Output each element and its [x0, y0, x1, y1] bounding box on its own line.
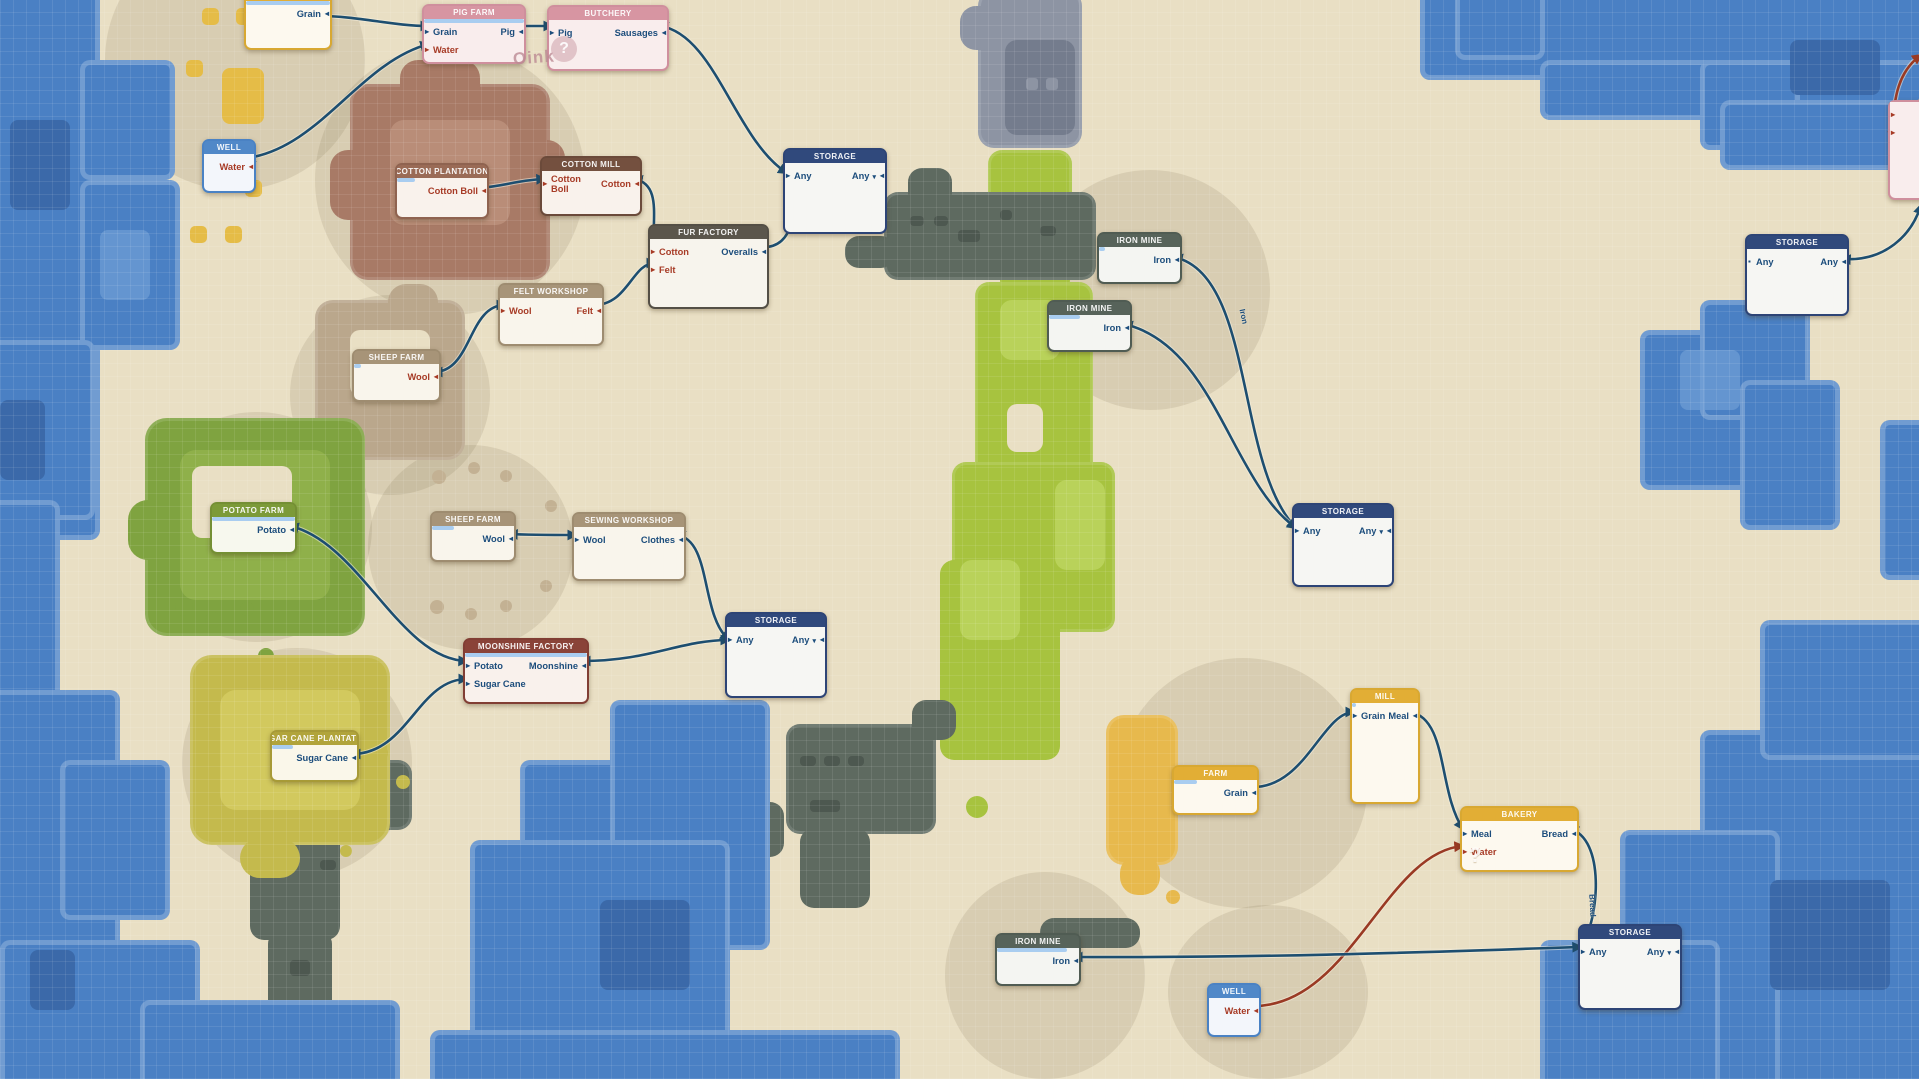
fur-factory[interactable]: FUR FACTORY▸CottonOveralls◂▸Felt — [648, 224, 769, 309]
bakery-output-bread[interactable]: Bread — [1542, 829, 1568, 839]
pig-farm[interactable]: PIG FARM▸GrainPig◂▸Water — [422, 4, 526, 64]
storage-right-title: STORAGE — [1294, 505, 1392, 518]
cotton-mill-body: ▸Cotton BollCotton◂ — [542, 171, 640, 214]
well-bottom-output-water[interactable]: Water — [1225, 1006, 1251, 1016]
output-port-marker: ◂ — [482, 187, 486, 195]
storage-bottom-right[interactable]: STORAGE▸AnyAny▾◂ — [1578, 924, 1682, 1010]
pig-farm-row-1: ▸Water — [424, 41, 524, 59]
well-top-title: WELL — [204, 141, 254, 154]
pig-farm-title: PIG FARM — [424, 6, 524, 19]
farm-bottom-body: Grain◂ — [1174, 780, 1257, 813]
bakery-title: BAKERY — [1462, 808, 1577, 821]
edge-node-row-1: ▸ — [1890, 124, 1919, 142]
storage-far-right-output-any[interactable]: Any — [1820, 257, 1838, 267]
felt-workshop-title: FELT WORKSHOP — [500, 285, 602, 298]
iron-mine-1-progress-bar — [1099, 247, 1105, 251]
output-port-marker: ◂ — [820, 636, 824, 644]
mill-body: ▸GrainMeal◂ — [1352, 703, 1418, 802]
cotton-plantation-output-cotton-boll[interactable]: Cotton Boll — [428, 186, 478, 196]
input-port-marker: ▸ — [543, 180, 547, 188]
moonshine-factory-input-potato[interactable]: Potato — [474, 661, 503, 671]
fur-factory-row-1: ▸Felt — [650, 261, 767, 279]
iron-mine-3[interactable]: IRON MINEIron◂ — [995, 933, 1081, 986]
sewing-workshop-row-0: ▸WoolClothes◂ — [574, 531, 684, 549]
cotton-plantation[interactable]: COTTON PLANTATIONCotton Boll◂ — [395, 163, 489, 219]
output-port-marker: ◂ — [249, 163, 253, 171]
mill-progress-bar — [1352, 703, 1356, 707]
sheep-farm-2-row-0: Wool◂ — [432, 530, 514, 548]
iron-mine-3-title: IRON MINE — [997, 935, 1079, 948]
input-port-marker: ▸ — [466, 662, 470, 670]
iron-mine-3-row-0: Iron◂ — [997, 952, 1079, 970]
iron-mine-1-body: Iron◂ — [1099, 247, 1180, 282]
cotton-mill-row-0: ▸Cotton BollCotton◂ — [542, 175, 640, 193]
storage-far-right-body: ▪AnyAny◂ — [1747, 249, 1847, 314]
sheep-farm-1-body: Wool◂ — [354, 364, 439, 400]
fur-factory-row-0: ▸CottonOveralls◂ — [650, 243, 767, 261]
pig-farm-input-water[interactable]: Water — [433, 45, 459, 55]
bakery-ghost-question-mark: ? — [1469, 844, 1482, 868]
moonshine-factory-body: ▸PotatoMoonshine◂▸Sugar Cane — [465, 653, 587, 702]
storage-right-input-any[interactable]: Any — [1303, 526, 1321, 536]
cotton-plantation-progress-bar — [397, 178, 415, 182]
farm-bottom[interactable]: FARMGrain◂ — [1172, 765, 1259, 815]
output-port-marker: ◂ — [679, 536, 683, 544]
potato-farm-title: POTATO FARM — [212, 504, 295, 517]
cotton-plantation-title: COTTON PLANTATION — [397, 165, 487, 178]
dropdown-arrow-icon[interactable]: ▾ — [872, 174, 876, 181]
storage-top-body: ▸AnyAny▾◂ — [785, 163, 885, 232]
edge-node-row-0: ▸ — [1890, 106, 1919, 124]
sugar-cane-plantation-title: SUGAR CANE PLANTATION — [272, 732, 357, 745]
output-port-marker: ◂ — [509, 535, 513, 543]
pig-farm-body: ▸GrainPig◂▸Water — [424, 19, 524, 62]
edge-node[interactable]: ▸▸ — [1888, 100, 1919, 200]
farm-top-progress-bar — [246, 1, 330, 5]
input-port-marker: ▸ — [728, 636, 732, 644]
output-port-marker: ◂ — [1572, 830, 1576, 838]
sheep-farm-2-output-wool[interactable]: Wool — [482, 534, 505, 544]
output-port-marker: ◂ — [1675, 948, 1679, 956]
storage-right-body: ▸AnyAny▾◂ — [1294, 518, 1392, 585]
moonshine-factory-title: MOONSHINE FACTORY — [465, 640, 587, 653]
butchery-title: BUTCHERY — [549, 7, 667, 20]
fur-factory-input-felt[interactable]: Felt — [659, 265, 676, 275]
input-port-marker: ▸ — [1891, 111, 1895, 119]
cotton-mill[interactable]: COTTON MILL▸Cotton BollCotton◂ — [540, 156, 642, 216]
sewing-workshop-body: ▸WoolClothes◂ — [574, 527, 684, 579]
iron-mine-1-output-iron[interactable]: Iron — [1153, 255, 1171, 265]
output-port-marker: ◂ — [290, 526, 294, 534]
output-port-marker: ◂ — [762, 248, 766, 256]
output-port-marker: ◂ — [325, 10, 329, 18]
storage-right-row-0: ▸AnyAny▾◂ — [1294, 522, 1392, 540]
potato-farm-progress-bar — [212, 517, 295, 521]
dropdown-arrow-icon[interactable]: ▾ — [812, 638, 816, 645]
storage-center-row-0: ▸AnyAny▾◂ — [727, 631, 825, 649]
iron-mine-2-row-0: Iron◂ — [1049, 319, 1130, 337]
farm-bottom-row-0: Grain◂ — [1174, 784, 1257, 802]
felt-workshop-body: ▸WoolFelt◂ — [500, 298, 602, 344]
input-port-marker: ▸ — [466, 680, 470, 688]
output-port-marker: ◂ — [1387, 527, 1391, 535]
moonshine-factory-output-moonshine[interactable]: Moonshine — [529, 661, 578, 671]
output-port-marker: ◂ — [352, 754, 356, 762]
felt-workshop-output-felt[interactable]: Felt — [576, 306, 593, 316]
pig-farm-input-grain[interactable]: Grain — [433, 27, 457, 37]
cotton-mill-input-cotton-boll[interactable]: Cotton Boll — [551, 174, 601, 194]
well-bottom-body: Water◂ — [1209, 998, 1259, 1035]
felt-workshop-row-0: ▸WoolFelt◂ — [500, 302, 602, 320]
bakery-row-0: ▸MealBread◂ — [1462, 825, 1577, 843]
storage-far-right-title: STORAGE — [1747, 236, 1847, 249]
output-port-marker: ◂ — [1175, 256, 1179, 264]
input-port-marker: ▸ — [1353, 712, 1357, 720]
fur-factory-title: FUR FACTORY — [650, 226, 767, 239]
farm-top-row-0: Grain◂ — [246, 5, 330, 23]
input-port-marker: ▸ — [786, 172, 790, 180]
storage-center-title: STORAGE — [727, 614, 825, 627]
output-port-marker: ◂ — [1125, 324, 1129, 332]
storage-far-right-input-any[interactable]: Any — [1756, 257, 1774, 267]
storage-right-output-any[interactable]: Any▾ — [1359, 526, 1383, 536]
cotton-plantation-row-0: Cotton Boll◂ — [397, 182, 487, 200]
input-port-marker: ▸ — [1581, 948, 1585, 956]
output-port-marker: ◂ — [880, 172, 884, 180]
sheep-farm-1-row-0: Wool◂ — [354, 368, 439, 386]
farm-top[interactable]: FARMGrain◂ — [244, 0, 332, 50]
storage-right[interactable]: STORAGE▸AnyAny▾◂ — [1292, 503, 1394, 587]
storage-top-output-any[interactable]: Any▾ — [852, 171, 876, 181]
bakery-body: ▸MealBread◂▸Water? — [1462, 821, 1577, 870]
storage-top-input-any[interactable]: Any — [794, 171, 812, 181]
sugar-cane-plantation-body: Sugar Cane◂ — [272, 745, 357, 780]
moonshine-factory[interactable]: MOONSHINE FACTORY▸PotatoMoonshine◂▸Sugar… — [463, 638, 589, 704]
well-top-output-water[interactable]: Water — [220, 162, 246, 172]
well-top-row-0: Water◂ — [204, 158, 254, 176]
output-port-marker: ◂ — [1413, 712, 1417, 720]
output-port-marker: ◂ — [519, 28, 523, 36]
iron-mine-1-title: IRON MINE — [1099, 234, 1180, 247]
mill-title: MILL — [1352, 690, 1418, 703]
output-port-marker: ◂ — [635, 180, 639, 188]
moonshine-factory-row-0: ▸PotatoMoonshine◂ — [465, 657, 587, 675]
iron-mine-2-body: Iron◂ — [1049, 315, 1130, 350]
dropdown-arrow-icon[interactable]: ▾ — [1379, 529, 1383, 536]
sheep-farm-2[interactable]: SHEEP FARMWool◂ — [430, 511, 516, 562]
moonshine-factory-progress-bar — [465, 653, 587, 657]
game-map[interactable]: IronBread FARMGrain◂PIG FARM▸GrainPig◂▸W… — [0, 0, 1919, 1079]
storage-top[interactable]: STORAGE▸AnyAny▾◂ — [783, 148, 887, 234]
sheep-farm-2-body: Wool◂ — [432, 526, 514, 560]
mill[interactable]: MILL▸GrainMeal◂ — [1350, 688, 1420, 804]
storage-center-body: ▸AnyAny▾◂ — [727, 627, 825, 696]
sewing-workshop-input-wool[interactable]: Wool — [583, 535, 606, 545]
mill-output-meal[interactable]: Meal — [1388, 711, 1409, 721]
fur-factory-input-cotton[interactable]: Cotton — [659, 247, 689, 257]
pig-farm-row-0: ▸GrainPig◂ — [424, 23, 524, 41]
storage-far-right[interactable]: STORAGE▪AnyAny◂ — [1745, 234, 1849, 316]
cotton-plantation-body: Cotton Boll◂ — [397, 178, 487, 217]
sugar-cane-plantation-progress-bar — [272, 745, 293, 749]
fur-factory-output-overalls[interactable]: Overalls — [721, 247, 758, 257]
bakery[interactable]: BAKERY▸MealBread◂▸Water? — [1460, 806, 1579, 872]
output-port-marker: ◂ — [1074, 957, 1078, 965]
sugar-cane-plantation-output-sugar-cane[interactable]: Sugar Cane — [296, 753, 348, 763]
cotton-mill-output-cotton[interactable]: Cotton — [601, 179, 631, 189]
output-port-marker: ◂ — [1254, 1007, 1258, 1015]
input-port-marker: ▸ — [501, 307, 505, 315]
mill-input-grain[interactable]: Grain — [1361, 711, 1385, 721]
sheep-farm-2-progress-bar — [432, 526, 454, 530]
input-port-marker: ▸ — [575, 536, 579, 544]
farm-top-body: Grain◂ — [246, 1, 330, 48]
sewing-workshop[interactable]: SEWING WORKSHOP▸WoolClothes◂ — [572, 512, 686, 581]
iron-mine-1-row-0: Iron◂ — [1099, 251, 1180, 269]
storage-bottom-right-body: ▸AnyAny▾◂ — [1580, 939, 1680, 1008]
felt-workshop[interactable]: FELT WORKSHOP▸WoolFelt◂ — [498, 283, 604, 346]
pig-farm-progress-bar — [424, 19, 524, 23]
well-bottom[interactable]: WELLWater◂ — [1207, 983, 1261, 1037]
storage-center-output-any[interactable]: Any▾ — [792, 635, 816, 645]
sheep-farm-1[interactable]: SHEEP FARMWool◂ — [352, 349, 441, 402]
storage-bottom-right-title: STORAGE — [1580, 926, 1680, 939]
iron-mine-3-progress-bar — [997, 948, 1067, 952]
input-port-marker: ▸ — [651, 266, 655, 274]
iron-mine-3-output-iron[interactable]: Iron — [1052, 956, 1070, 966]
iron-mine-2-progress-bar — [1049, 315, 1080, 319]
output-port-marker: ◂ — [597, 307, 601, 315]
input-port-marker: ▸ — [550, 29, 554, 37]
farm-top-output-grain[interactable]: Grain — [297, 9, 321, 19]
sheep-farm-2-title: SHEEP FARM — [432, 513, 514, 526]
dropdown-arrow-icon[interactable]: ▾ — [1667, 950, 1671, 957]
input-port-marker: ▸ — [1463, 830, 1467, 838]
input-port-marker: ▸ — [425, 28, 429, 36]
input-port-marker: ▸ — [1891, 129, 1895, 137]
sewing-workshop-output-clothes[interactable]: Clothes — [641, 535, 675, 545]
edge-node-body: ▸▸ — [1890, 102, 1919, 198]
moonshine-factory-input-sugar-cane[interactable]: Sugar Cane — [474, 679, 526, 689]
output-port-marker: ◂ — [434, 373, 438, 381]
iron-mine-2[interactable]: IRON MINEIron◂ — [1047, 300, 1132, 352]
sugar-cane-plantation-row-0: Sugar Cane◂ — [272, 749, 357, 767]
potato-farm-row-0: Potato◂ — [212, 521, 295, 539]
storage-bottom-right-output-any[interactable]: Any▾ — [1647, 947, 1671, 957]
sheep-farm-1-progress-bar — [354, 364, 361, 368]
output-port-marker: ◂ — [1842, 258, 1846, 266]
storage-center[interactable]: STORAGE▸AnyAny▾◂ — [725, 612, 827, 698]
pig-farm-output-pig[interactable]: Pig — [501, 27, 515, 37]
input-port-marker: ▸ — [651, 248, 655, 256]
input-port-marker: ▸ — [1463, 848, 1467, 856]
output-port-marker: ◂ — [582, 662, 586, 670]
potato-farm-body: Potato◂ — [212, 517, 295, 552]
farm-bottom-output-grain[interactable]: Grain — [1224, 788, 1248, 798]
iron-mine-2-output-iron[interactable]: Iron — [1103, 323, 1121, 333]
bakery-input-meal[interactable]: Meal — [1471, 829, 1492, 839]
storage-bottom-right-input-any[interactable]: Any — [1589, 947, 1607, 957]
storage-center-input-any[interactable]: Any — [736, 635, 754, 645]
storage-bottom-right-row-0: ▸AnyAny▾◂ — [1580, 943, 1680, 961]
question-badge: ? — [551, 36, 577, 62]
potato-farm[interactable]: POTATO FARMPotato◂ — [210, 502, 297, 554]
iron-mine-1[interactable]: IRON MINEIron◂ — [1097, 232, 1182, 284]
potato-farm-output-potato[interactable]: Potato — [257, 525, 286, 535]
moonshine-factory-row-1: ▸Sugar Cane — [465, 675, 587, 693]
output-port-marker: ◂ — [1252, 789, 1256, 797]
farm-bottom-progress-bar — [1174, 780, 1197, 784]
mill-row-0: ▸GrainMeal◂ — [1352, 707, 1418, 725]
storage-top-title: STORAGE — [785, 150, 885, 163]
oink-easter-egg: Oink — [512, 47, 555, 70]
well-top[interactable]: WELLWater◂ — [202, 139, 256, 193]
input-port-marker: ▸ — [425, 46, 429, 54]
sheep-farm-1-output-wool[interactable]: Wool — [407, 372, 430, 382]
input-port-marker: ▸ — [1295, 527, 1299, 535]
well-bottom-title: WELL — [1209, 985, 1259, 998]
iron-mine-2-title: IRON MINE — [1049, 302, 1130, 315]
felt-workshop-input-wool[interactable]: Wool — [509, 306, 532, 316]
storage-top-row-0: ▸AnyAny▾◂ — [785, 167, 885, 185]
sheep-farm-1-title: SHEEP FARM — [354, 351, 439, 364]
butchery-output-sausages[interactable]: Sausages — [615, 28, 658, 38]
farm-bottom-title: FARM — [1174, 767, 1257, 780]
sugar-cane-plantation[interactable]: SUGAR CANE PLANTATIONSugar Cane◂ — [270, 730, 359, 782]
well-bottom-row-0: Water◂ — [1209, 1002, 1259, 1020]
cotton-mill-title: COTTON MILL — [542, 158, 640, 171]
input-port-marker: ▪ — [1748, 258, 1751, 266]
iron-mine-3-body: Iron◂ — [997, 948, 1079, 984]
sewing-workshop-title: SEWING WORKSHOP — [574, 514, 684, 527]
storage-far-right-row-0: ▪AnyAny◂ — [1747, 253, 1847, 271]
fur-factory-body: ▸CottonOveralls◂▸Felt — [650, 239, 767, 307]
well-top-body: Water◂ — [204, 154, 254, 191]
output-port-marker: ◂ — [662, 29, 666, 37]
